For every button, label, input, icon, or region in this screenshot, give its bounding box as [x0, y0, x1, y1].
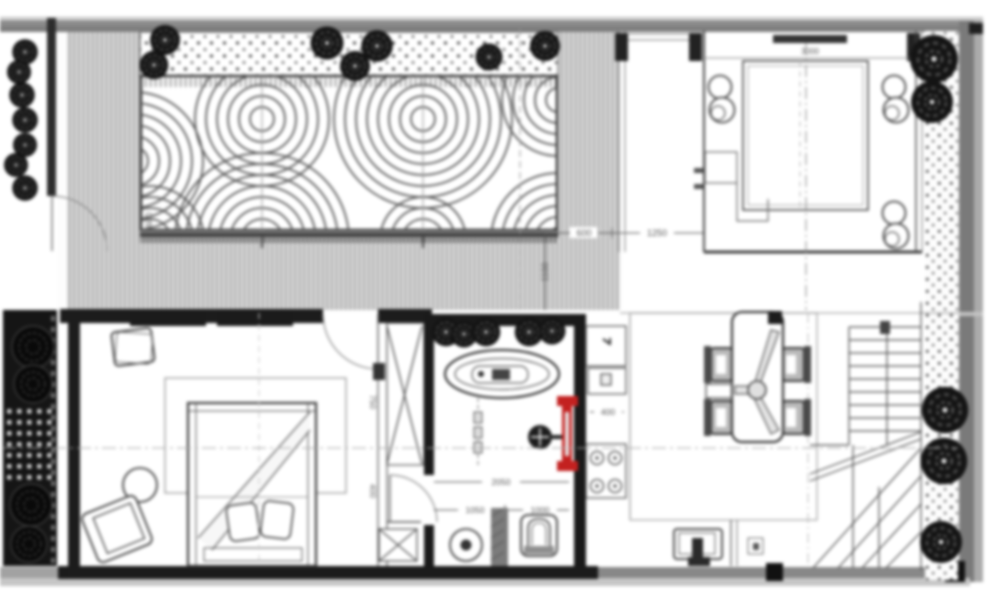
- svg-text:1050: 1050: [466, 505, 485, 515]
- svg-text:1250: 1250: [647, 228, 667, 238]
- svg-text:3000: 3000: [801, 47, 819, 56]
- svg-text:600: 600: [144, 212, 154, 227]
- svg-text:400: 400: [368, 484, 378, 498]
- svg-text:1100: 1100: [540, 262, 550, 281]
- svg-text:600: 600: [576, 228, 591, 238]
- svg-text:750: 750: [368, 395, 378, 409]
- svg-text:1000: 1000: [531, 505, 550, 515]
- svg-text:400: 400: [601, 407, 615, 417]
- svg-text:2050: 2050: [492, 477, 511, 487]
